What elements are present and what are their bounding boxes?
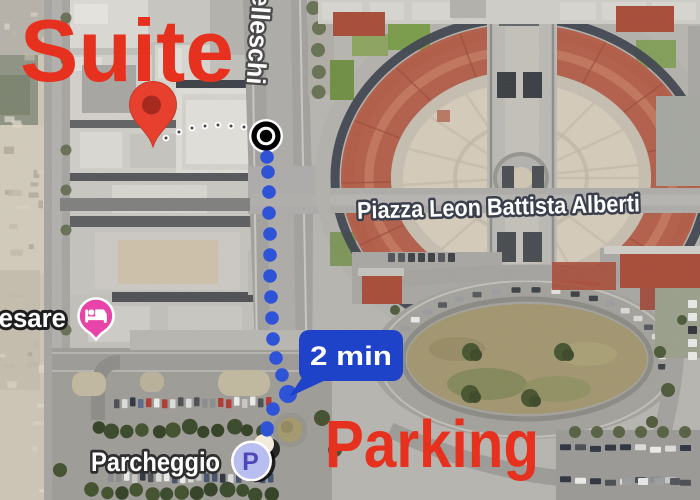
svg-text:2 min: 2 min <box>310 341 392 371</box>
svg-text:elleschi: elleschi <box>241 0 277 85</box>
svg-text:Parcheggio: Parcheggio <box>91 447 220 477</box>
svg-text:Parking: Parking <box>325 407 539 482</box>
svg-text:P: P <box>242 448 259 476</box>
svg-text:Suite: Suite <box>20 1 234 100</box>
svg-text:Cesare: Cesare <box>0 303 66 333</box>
